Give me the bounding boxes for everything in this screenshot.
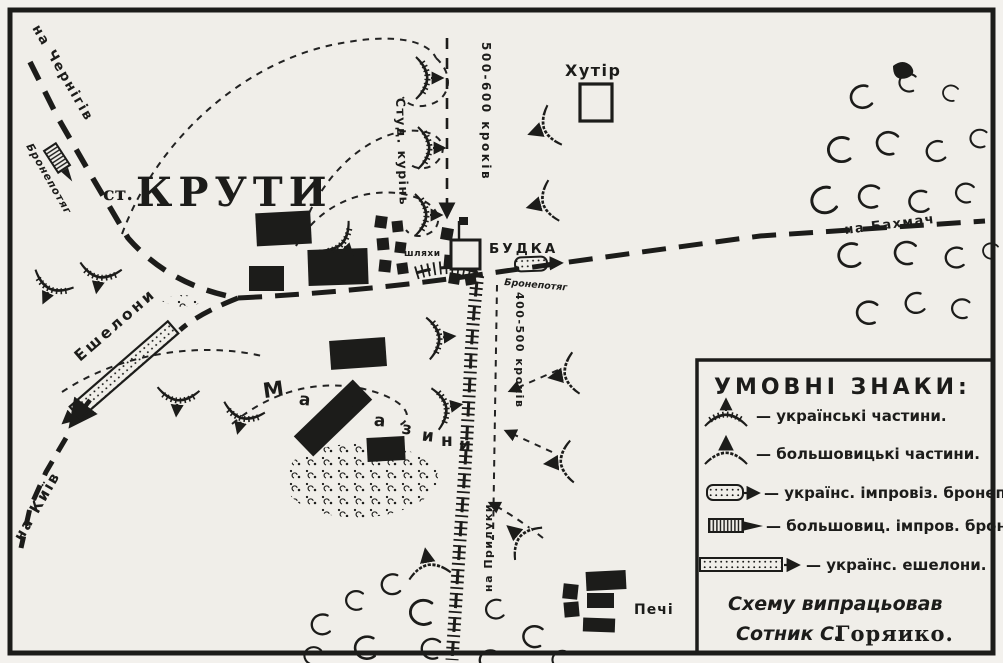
legend-credit-author-name: Горяико.: [835, 621, 954, 646]
to-pryluky-label: на Прилуки: [482, 503, 495, 592]
distance-south-label: 400-500 кроків: [513, 292, 526, 408]
legend: УМОВНІ ЗНАКИ: — українські частини. — бо…: [697, 360, 1003, 653]
legend-credit-line1: Схему випрацьовав: [728, 593, 943, 615]
svg-text:и: и: [458, 435, 471, 456]
battle-of-kruty-map: ст. КРУТИ на Чернігів Бронепотяг Студ. к…: [0, 0, 1003, 663]
oven-2: [587, 593, 614, 608]
svg-text:а: а: [298, 390, 312, 411]
oven-3: [583, 617, 615, 632]
oven-4: [562, 583, 578, 599]
khutir-building: [580, 84, 612, 121]
station-building-3: [249, 266, 284, 291]
oven-1: [586, 570, 627, 591]
station-prefix-label: ст.: [103, 183, 133, 205]
tracks-label: шляхи: [404, 249, 441, 259]
station-name-label: КРУТИ: [136, 169, 332, 216]
svg-text:а: а: [373, 411, 386, 432]
map-canvas: ст. КРУТИ на Чернігів Бронепотяг Студ. к…: [0, 0, 1003, 663]
oven-5: [563, 601, 579, 617]
flag-icon: [459, 217, 468, 225]
legend-item-label: — большовиц. імпров. бронепотяг.: [766, 517, 1003, 535]
magazine-building-3: [366, 436, 405, 462]
budka-square: [451, 240, 480, 269]
svg-text:г: г: [348, 399, 357, 419]
legend-item-label: — українс. імпровіз. бронепотяг.: [764, 484, 1003, 502]
station-building-2: [307, 248, 368, 286]
ovens-label: Печі: [634, 602, 674, 618]
legend-credit-author-prefix: Сотник С.: [736, 623, 841, 645]
legend-item-label: — українські частини.: [756, 407, 947, 425]
khutir-label: Хутір: [565, 61, 621, 80]
legend-item-label: — українс. ешелони.: [806, 556, 987, 574]
svg-text:н: н: [441, 431, 453, 451]
budka-label: БУДКА: [489, 241, 558, 257]
legend-title: УМОВНІ ЗНАКИ:: [714, 375, 971, 400]
distance-north-label: 500-600 кроків: [479, 42, 493, 181]
svg-text:М: М: [261, 376, 285, 403]
svg-text:и: и: [421, 426, 435, 447]
magazine-building-1: [329, 337, 387, 370]
legend-item-label: — большовицькі частини.: [756, 445, 980, 463]
